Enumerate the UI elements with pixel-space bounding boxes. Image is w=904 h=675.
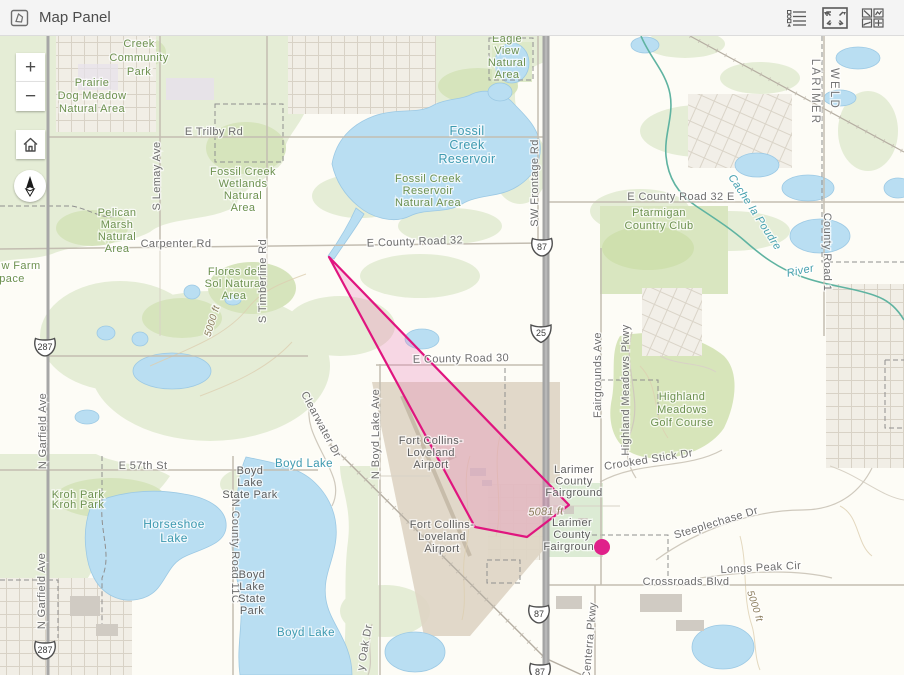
map-label: HighlandMeadowsGolf Course <box>650 391 713 429</box>
legend-button[interactable] <box>782 4 812 32</box>
svg-text:87: 87 <box>537 242 547 252</box>
map-label: WELD <box>828 68 840 110</box>
point-marker[interactable] <box>594 539 610 555</box>
svg-text:287: 287 <box>37 645 52 655</box>
zoom-in-button[interactable]: + <box>16 53 45 82</box>
map-label: County Road 1 <box>821 213 833 292</box>
panel-title: Map Panel <box>39 9 111 26</box>
map-label: PtarmiganCountry Club <box>625 207 694 232</box>
map-label: N Garfield Ave <box>37 393 49 469</box>
map-label: N Boyd Lake Ave <box>370 389 382 479</box>
map-label: Steeplechase Dr <box>673 505 760 542</box>
map-label: E Trilby Rd <box>185 126 243 138</box>
map-label: LARIMER <box>809 59 821 126</box>
legend-icon <box>786 8 808 28</box>
map-label: Fairgrounds Ave <box>592 332 604 418</box>
map-canvas[interactable]: CreekCommunityParkPrairieDog MeadowNatur… <box>0 36 904 675</box>
map-label: Centerra Pkwy <box>581 602 600 675</box>
panel-header: Map Panel <box>0 0 904 36</box>
map-label: Carpenter Rd <box>141 238 212 250</box>
map-label: E 57th St <box>119 460 168 472</box>
basemap-gallery-button[interactable] <box>858 4 888 32</box>
home-button[interactable] <box>16 130 45 159</box>
svg-text:87: 87 <box>534 609 544 619</box>
svg-text:87: 87 <box>535 667 545 675</box>
map-label: BoydLakeStatePark <box>238 569 266 617</box>
fullscreen-button[interactable] <box>820 4 850 32</box>
map-label: 5081 ft <box>528 505 564 518</box>
compass-button[interactable] <box>14 170 46 202</box>
svg-text:287: 287 <box>37 342 52 352</box>
map-label: S Timberline Rd <box>257 239 269 323</box>
svg-text:25: 25 <box>536 328 546 338</box>
zoom-out-button[interactable]: − <box>16 82 45 111</box>
map-panel-icon <box>10 8 30 28</box>
compass-icon <box>20 174 40 198</box>
map-label: Kroh Park <box>52 499 105 511</box>
map-label: Longs Peak Cir <box>720 560 801 576</box>
minus-icon: − <box>25 87 36 106</box>
map-label: SW Frontage Rd <box>529 139 541 227</box>
map-label: E County Road 30 <box>413 352 509 366</box>
map-label: Fossil CreekReservoirNatural Area <box>395 173 461 209</box>
map-label: S Lemay Ave <box>151 141 163 210</box>
map-label: Boyd Lake <box>275 458 333 470</box>
map-label: Highland Meadows Pkwy <box>620 324 632 455</box>
map-label: E County Road 32 <box>367 234 464 249</box>
basemap-gallery-icon <box>861 7 885 29</box>
fullscreen-icon <box>822 7 848 29</box>
map-label: Crossroads Blvd <box>643 576 730 588</box>
map-label: pace <box>0 273 25 285</box>
plus-icon: + <box>25 58 36 77</box>
map-label: Boyd Lake <box>277 627 335 639</box>
map-label: w Farm <box>0 260 40 272</box>
us-route-shield: 87 <box>530 664 551 675</box>
home-icon <box>22 137 39 153</box>
map-label: E County Road 32 E <box>627 191 734 203</box>
map-label: N Garfield Ave <box>36 553 48 629</box>
map-panel-window: Map Panel <box>0 0 904 675</box>
